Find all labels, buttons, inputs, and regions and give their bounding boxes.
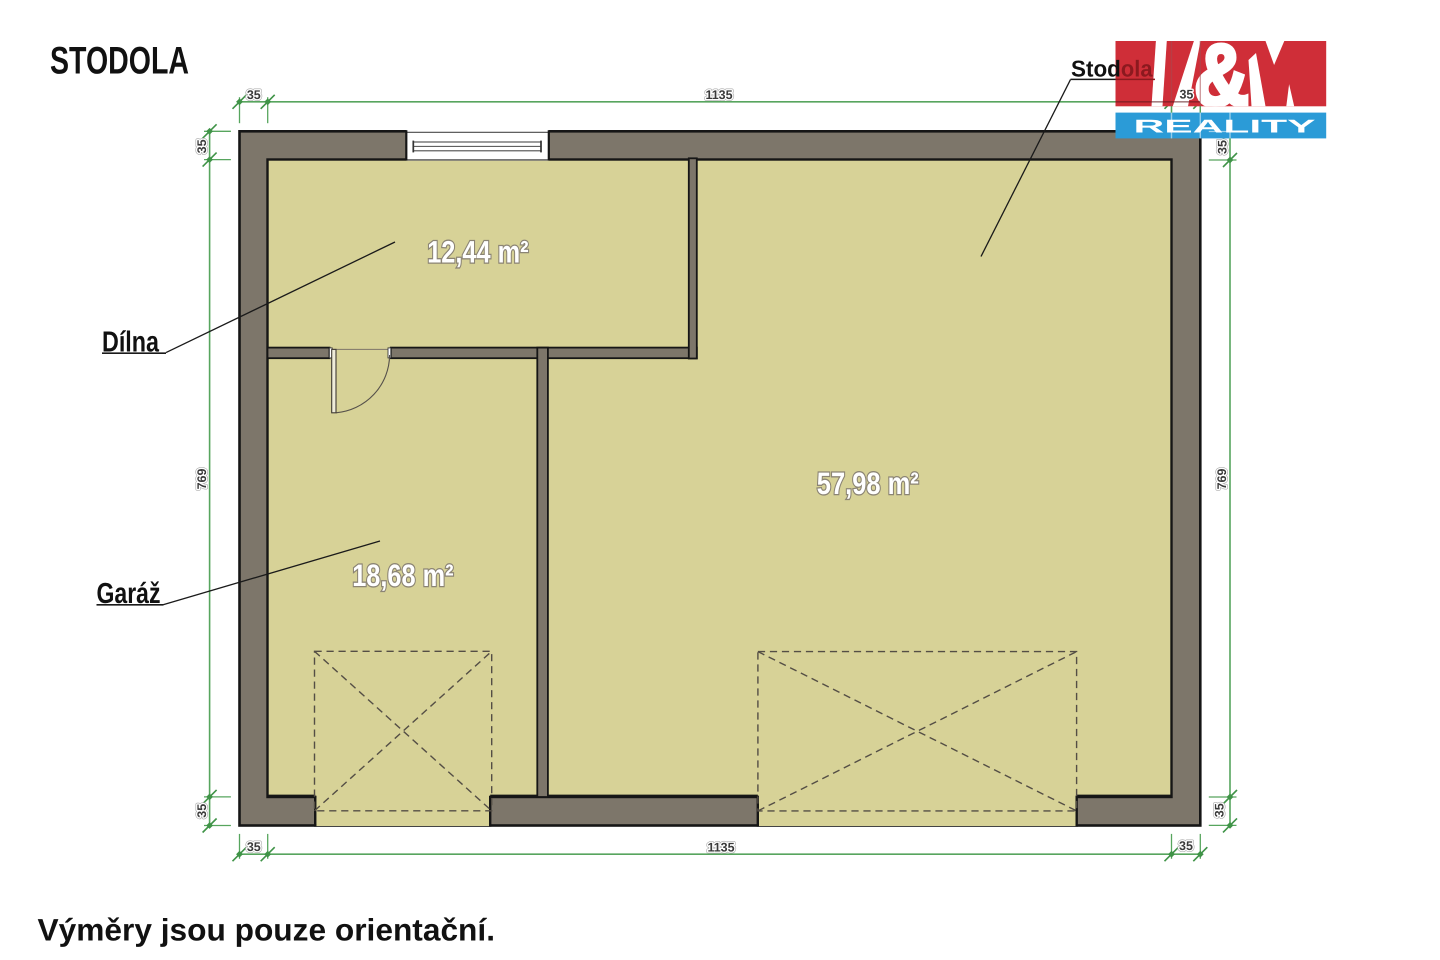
svg-text:35: 35 xyxy=(195,804,209,818)
svg-text:769: 769 xyxy=(1215,469,1229,490)
svg-text:18,68 m²: 18,68 m² xyxy=(352,558,453,593)
svg-text:REALITY: REALITY xyxy=(1134,116,1318,137)
svg-text:35: 35 xyxy=(1179,87,1193,101)
svg-text:Výměry jsou pouze orientační.: Výměry jsou pouze orientační. xyxy=(38,913,495,948)
svg-text:STODOLA: STODOLA xyxy=(50,40,189,83)
svg-text:12,44 m²: 12,44 m² xyxy=(427,235,528,270)
svg-text:Dílna: Dílna xyxy=(102,326,160,358)
svg-text:35: 35 xyxy=(1215,140,1229,154)
svg-text:35: 35 xyxy=(195,139,209,153)
svg-text:ola: ola xyxy=(1121,56,1153,82)
svg-text:1135: 1135 xyxy=(707,840,734,854)
svg-text:Stod: Stod xyxy=(1071,56,1121,82)
svg-text:35: 35 xyxy=(1213,803,1227,817)
svg-text:35: 35 xyxy=(1179,839,1193,853)
svg-text:35: 35 xyxy=(247,88,261,102)
svg-text:769: 769 xyxy=(195,469,209,490)
svg-text:57,98 m²: 57,98 m² xyxy=(817,466,919,501)
svg-text:1135: 1135 xyxy=(705,88,732,102)
svg-text:35: 35 xyxy=(247,840,261,854)
svg-text:Garáž: Garáž xyxy=(97,578,161,610)
